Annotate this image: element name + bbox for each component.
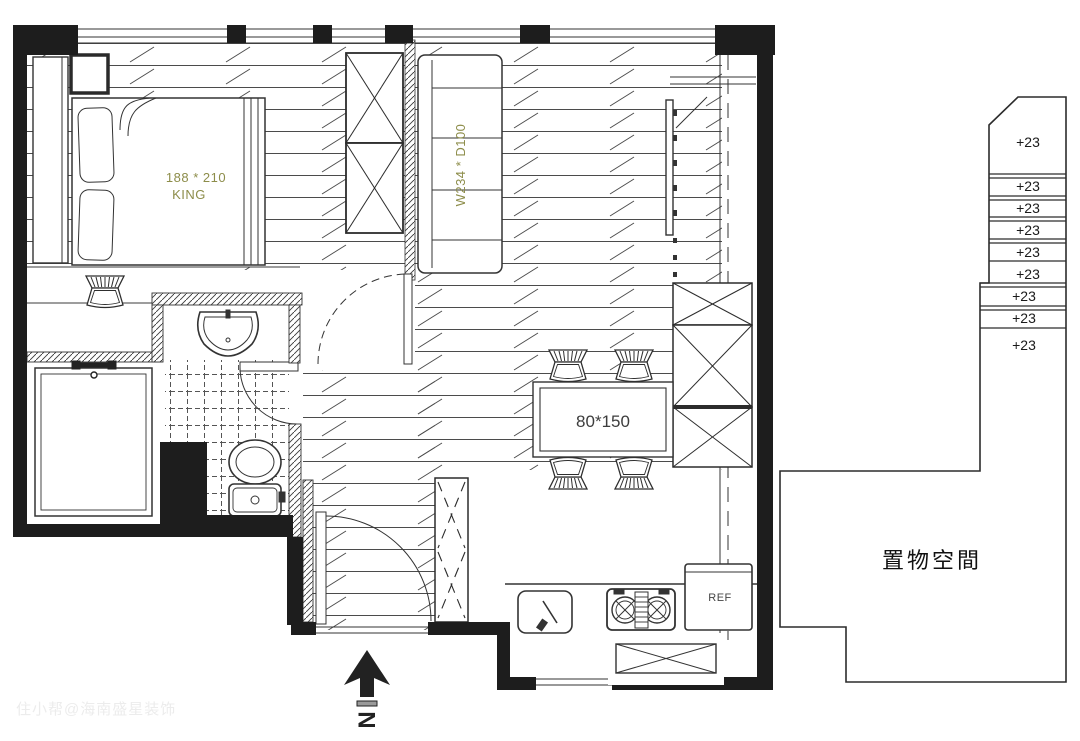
- utility-area: [27, 352, 160, 516]
- stair-level-label: +23: [1012, 337, 1036, 353]
- watermark: 住小帮@海南盛星装饰: [16, 698, 176, 719]
- stair-level-label: +23: [1016, 222, 1040, 238]
- stool: [86, 276, 124, 308]
- partition-wall: [405, 40, 415, 280]
- kitchen-sink: [518, 591, 572, 633]
- dining-table-size-label: 80*150: [576, 412, 630, 431]
- dining-chair: [549, 458, 587, 490]
- stair-level-label: +23: [1016, 244, 1040, 260]
- stair-level-label: +23: [1016, 200, 1040, 216]
- stair-level-label: +23: [1016, 178, 1040, 194]
- dining-chair: [615, 458, 653, 490]
- window-sill: [27, 352, 160, 362]
- floor-plan-canvas: 188 * 210 KING W234 * D100 80*150 REF +2…: [0, 0, 1080, 741]
- dining-chair: [615, 350, 653, 382]
- shoe-cabinet: [435, 478, 468, 622]
- stair-level-label: +23: [1016, 266, 1040, 282]
- entry-door-leaf: [316, 512, 326, 624]
- hall-cabinets: [673, 283, 752, 467]
- dining-chair: [549, 350, 587, 382]
- closet: [33, 57, 68, 263]
- fridge-label: REF: [708, 592, 732, 604]
- stair-level-label: +23: [1016, 134, 1040, 150]
- bed-type-label: KING: [172, 187, 206, 202]
- nightstand: [71, 55, 108, 93]
- pillow: [78, 189, 114, 260]
- pillow: [78, 107, 115, 182]
- bed-size-label: 188 * 210: [166, 170, 226, 185]
- floor-plan-drawing: 188 * 210 KING W234 * D100 80*150 REF +2…: [0, 0, 1080, 741]
- wardrobe: [346, 53, 403, 233]
- tv: [666, 100, 673, 235]
- stair-level-label: +23: [1012, 288, 1036, 304]
- stair-level-label: +23: [1012, 310, 1036, 326]
- north-label: N: [354, 711, 381, 728]
- sofa-size-label: W234 * D100: [453, 124, 468, 207]
- stove: [607, 589, 675, 630]
- bedroom-door: [318, 274, 412, 364]
- north-arrow-icon: [344, 650, 390, 706]
- storage-area-label: 置物空間: [882, 548, 982, 573]
